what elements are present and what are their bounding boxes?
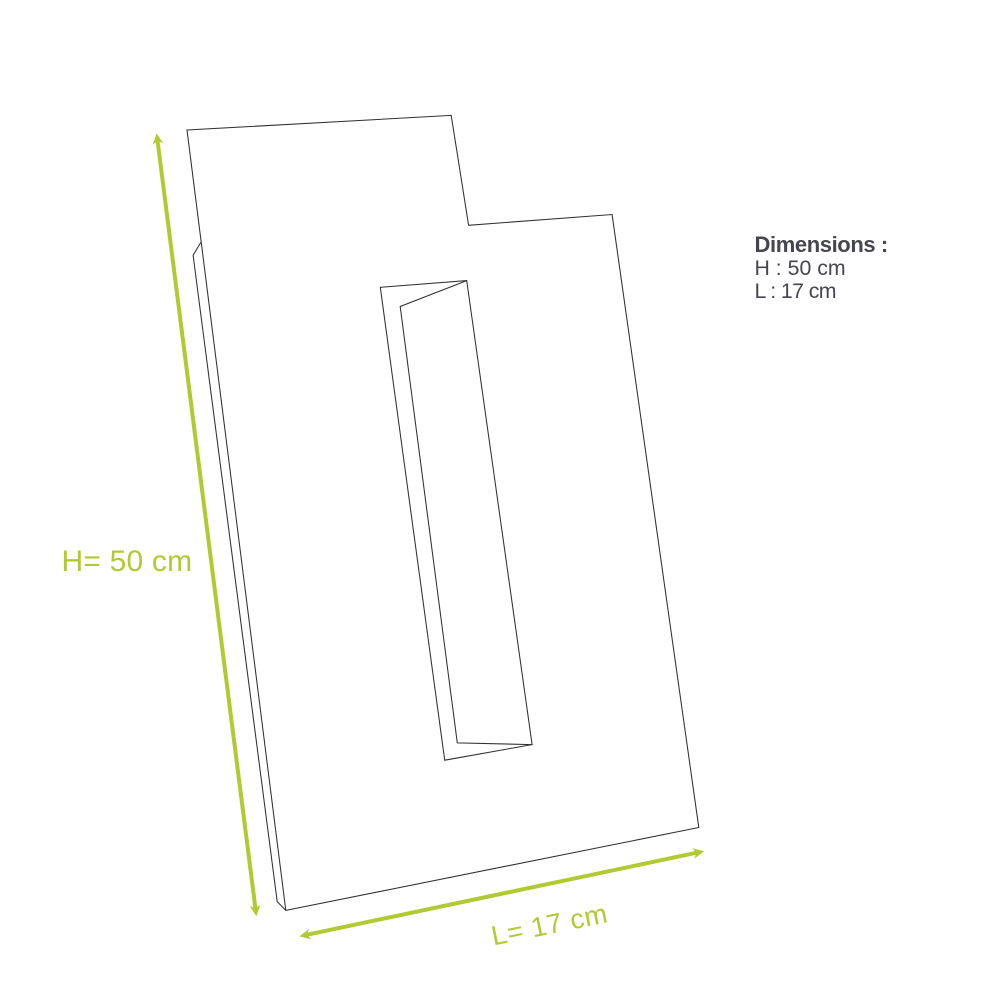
svg-text:L : 17 cm: L : 17 cm	[755, 279, 836, 303]
svg-text:H= 50 cm: H= 50 cm	[62, 545, 193, 578]
svg-text:Dimensions :: Dimensions :	[755, 232, 888, 257]
svg-text:H : 50 cm: H : 50 cm	[755, 256, 846, 280]
svg-text:L= 17 cm: L= 17 cm	[489, 897, 611, 951]
